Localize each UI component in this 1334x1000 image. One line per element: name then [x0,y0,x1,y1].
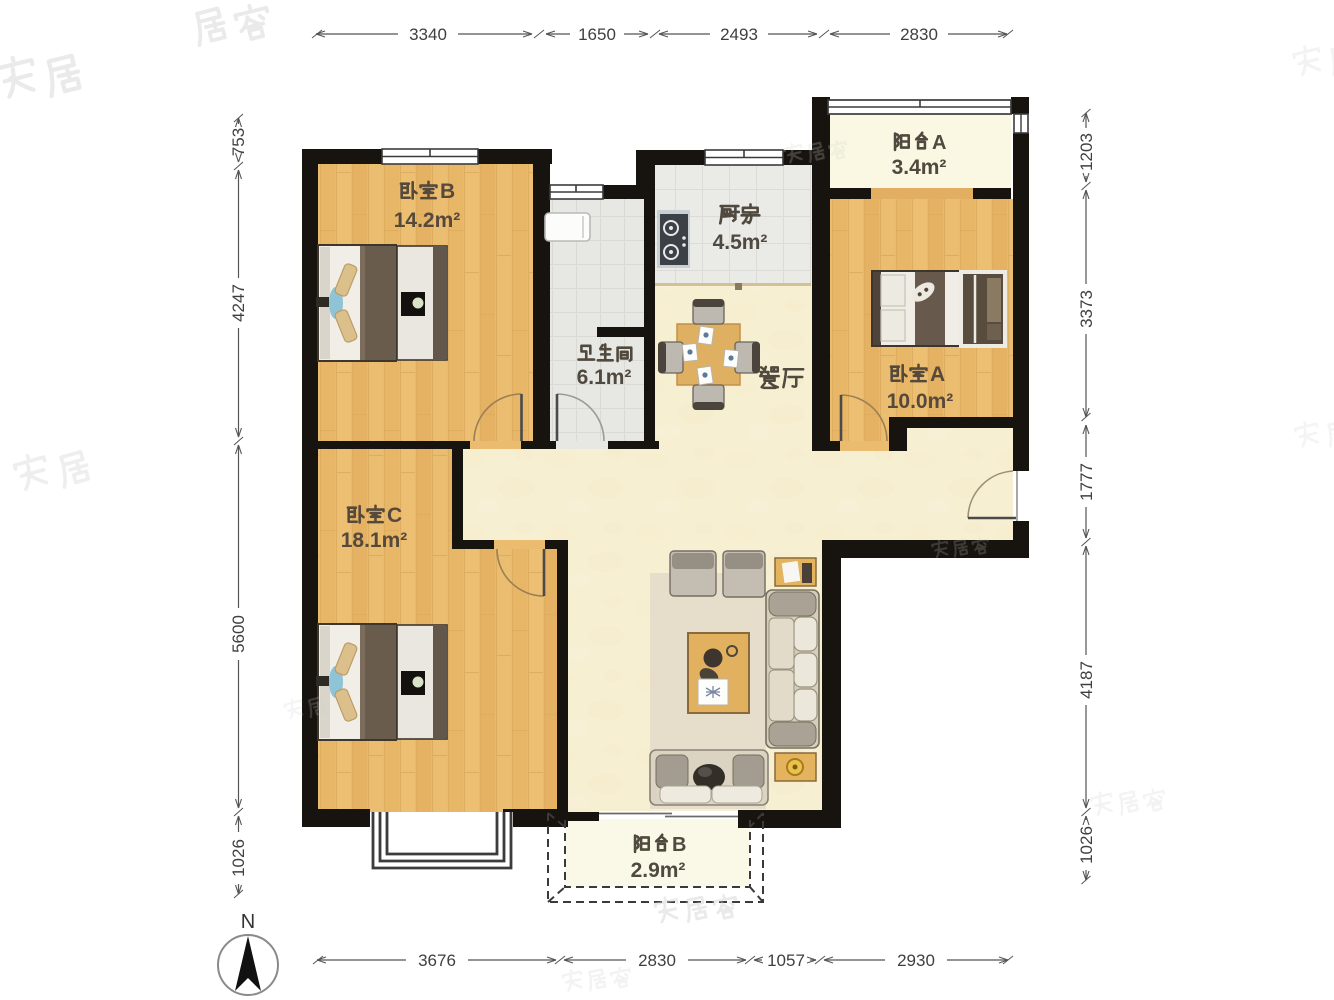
svg-text:A: A [930,363,945,386]
svg-text:18.1m²: 18.1m² [341,529,408,552]
svg-text:B: B [440,180,455,203]
svg-text:N: N [241,911,255,933]
svg-text:C: C [387,504,402,527]
svg-text:3373: 3373 [1077,290,1096,328]
svg-text:1026: 1026 [1077,826,1096,864]
svg-text:1650: 1650 [578,25,616,44]
svg-text:1026: 1026 [229,839,248,877]
svg-text:1203: 1203 [1077,133,1096,171]
svg-text:14.2m²: 14.2m² [394,209,461,232]
svg-text:3676: 3676 [418,951,456,970]
svg-text:753: 753 [229,128,248,156]
svg-text:4.5m²: 4.5m² [713,231,768,254]
svg-text:A: A [932,132,946,154]
svg-text:2.9m²: 2.9m² [631,859,686,882]
svg-text:3.4m²: 3.4m² [892,156,947,179]
svg-text:1057: 1057 [767,951,805,970]
svg-text:10.0m²: 10.0m² [887,390,954,413]
svg-text:4247: 4247 [229,284,248,322]
svg-text:4187: 4187 [1077,661,1096,699]
svg-text:2493: 2493 [720,25,758,44]
svg-text:2930: 2930 [897,951,935,970]
svg-text:2830: 2830 [900,25,938,44]
svg-text:B: B [672,834,686,856]
svg-text:5600: 5600 [229,615,248,653]
svg-text:3340: 3340 [409,25,447,44]
svg-text:2830: 2830 [638,951,676,970]
svg-text:1777: 1777 [1077,463,1096,501]
svg-text:6.1m²: 6.1m² [577,366,632,389]
